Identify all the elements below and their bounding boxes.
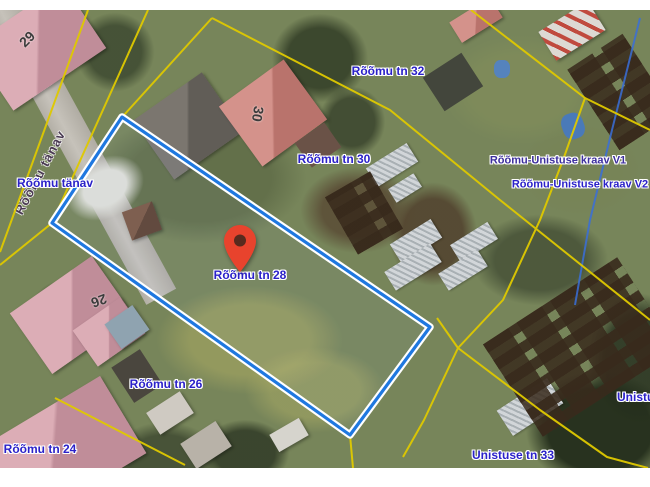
shed-center-1 [111,349,162,403]
white-tent [269,418,308,452]
ditch-label-kraav-v1: Rõõmu-Unistuse kraav V1 [490,156,626,167]
parcel-label-roomu-tn-30: Rõõmu tn 30 [298,153,371,165]
parcel-label-roomu-tn-32: Rõõmu tn 32 [352,65,425,77]
street-name-along-road: Rõõmu tänav [11,128,68,217]
shed-dark-right [423,53,483,112]
parcel-label-roomu-tn-26: Rõõmu tn 26 [130,378,203,390]
shed-red-topright [449,10,502,43]
ditch-label-kraav-v2: Rõõmu-Unistuse kraav V2 [512,180,648,191]
location-pin[interactable] [223,224,257,274]
street-label-roomu-tanav: Rõõmu tänav [17,177,93,189]
parcel-label-roomu-tn-24: Rõõmu tn 24 [4,443,77,455]
parcel-label-unistuse-clipped: Unistuse [617,391,650,403]
roof-number-30: 30 [249,105,267,123]
blue-tarp [558,110,588,142]
shed-center-3 [180,421,232,468]
greenhouse [388,173,422,202]
pin-body [224,225,256,272]
blue-tarp [494,60,510,78]
shed-center-2 [146,391,194,435]
screenshot-root: Rõõmu tänav 29 26 30 Rõõmu tn 32 Rõõmu t… [0,0,650,487]
pin-inner-circle [234,235,246,247]
building-roof-gray [133,72,243,179]
parcel-label-unistuse-tn-33: Unistuse tn 33 [472,449,554,461]
aerial-map-canvas[interactable]: Rõõmu tänav 29 26 30 Rõõmu tn 32 Rõõmu t… [0,10,650,468]
